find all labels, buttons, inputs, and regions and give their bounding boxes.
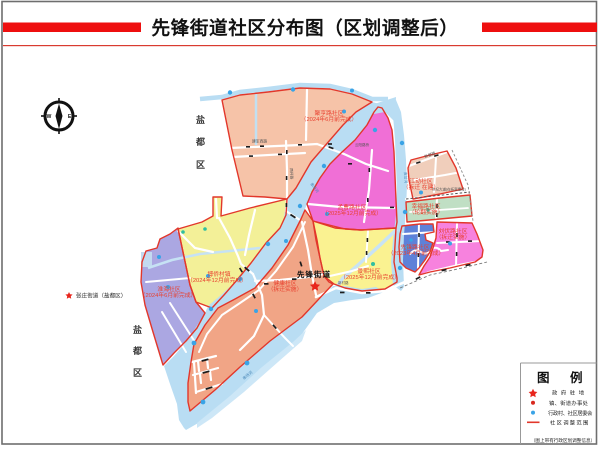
svg-text:都: 都 [195,136,205,147]
svg-text:建军西路: 建军西路 [252,139,267,144]
svg-text:皮岔河: 皮岔河 [403,172,409,184]
svg-text:区: 区 [133,368,142,378]
svg-text:都: 都 [132,345,142,356]
svg-text:行政村、社区居委会: 行政村、社区居委会 [548,409,593,417]
svg-text:先锋街道社区分布图（区划调整后）: 先锋街道社区分布图（区划调整后） [151,18,458,39]
svg-text:图: 图 [537,371,550,385]
svg-text:（图上带有行政区划调整信息）: （图上带有行政区划调整信息） [531,437,595,444]
svg-text:幸福路社区（轮翻实施）: 幸福路社区（轮翻实施） [409,202,444,216]
svg-text:张庄街道（盐都区）: 张庄街道（盐都区） [76,292,126,300]
svg-text:社区调整范围: 社区调整范围 [550,419,590,427]
svg-text:区: 区 [196,160,205,170]
svg-text:盐: 盐 [196,114,205,125]
svg-text:西环路: 西环路 [289,168,294,180]
svg-text:盐: 盐 [133,324,142,335]
svg-text:例: 例 [570,370,583,385]
svg-text:政府驻地: 政府驻地 [552,389,588,397]
svg-text:镇、街道办事处: 镇、街道办事处 [549,399,589,407]
svg-text:W: W [47,114,52,120]
svg-text:云阳路桥: 云阳路桥 [355,142,369,147]
svg-text:先锋街道: 先锋街道 [297,269,331,279]
svg-text:刘伏路社区（拆迁实施）: 刘伏路社区（拆迁实施） [436,227,471,241]
